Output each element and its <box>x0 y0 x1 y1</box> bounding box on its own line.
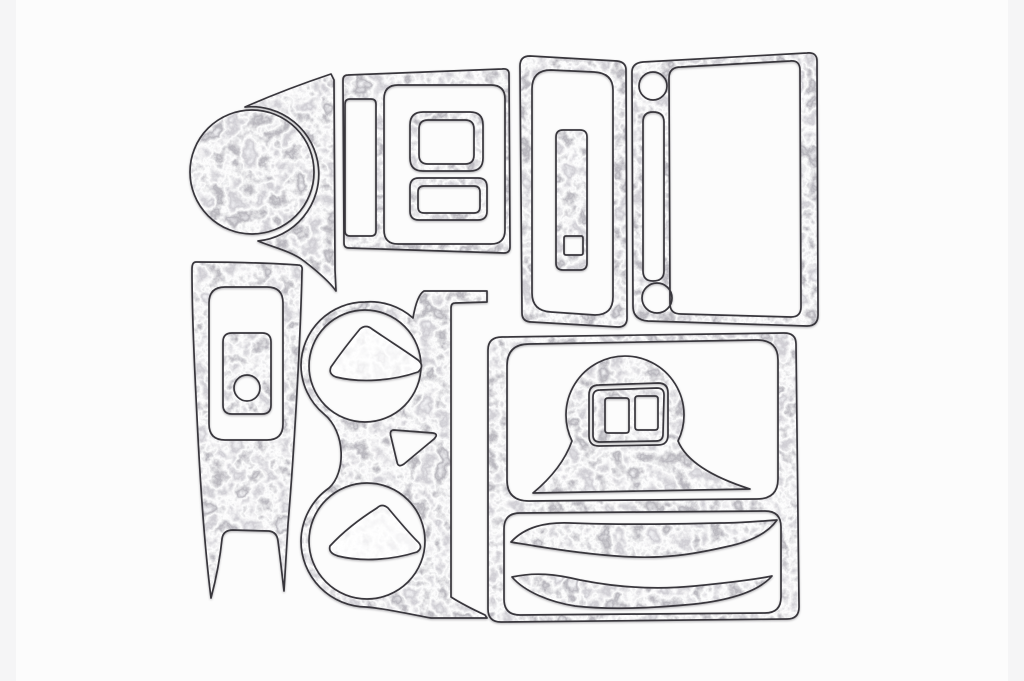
right-edge-shade <box>1008 0 1024 681</box>
left-edge-shade <box>0 0 16 681</box>
piece-console-inset-plate <box>223 333 271 414</box>
trim-kit-svg <box>0 0 1024 681</box>
photo-canvas <box>0 0 1024 681</box>
trim-kit-photo <box>0 0 1024 681</box>
